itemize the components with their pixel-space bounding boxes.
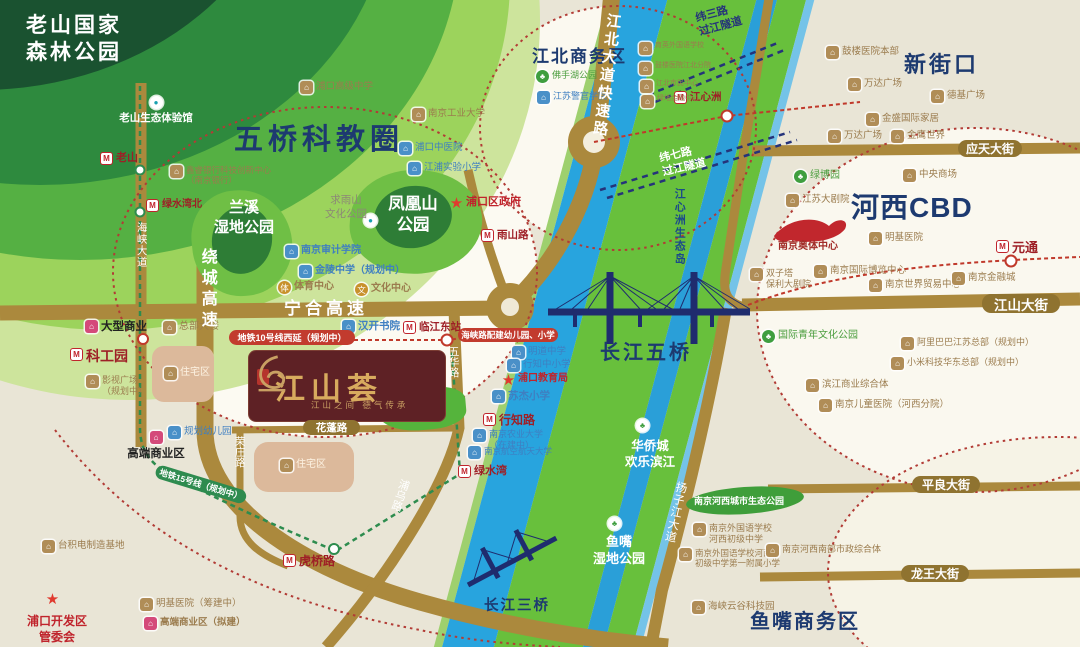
poi-nanjing-wtc-icon: ⌂ bbox=[869, 279, 882, 292]
label-changjiang-5th-bridge: 长江五桥 bbox=[600, 340, 692, 366]
poi-laoshan-eco-hall-icon: ● bbox=[150, 96, 163, 109]
poi-metro-yuantong-icon: M bbox=[996, 240, 1009, 253]
poi-wanda-plaza-north: ⌂万达广场 bbox=[848, 78, 902, 91]
poi-octbay-leaf-icon: ♣ bbox=[636, 419, 649, 432]
poi-jiangsu-grand-theatre-icon: ⌂ bbox=[786, 194, 799, 207]
poi-foshouhu-park-icon: ♣ bbox=[536, 70, 549, 83]
poi-highend-commerce-planned-icon: ⌂ bbox=[144, 617, 157, 630]
poi-yuzui-leaf-icon: ♣ bbox=[608, 517, 621, 530]
poi-metro-laoshan-icon: M bbox=[100, 152, 113, 165]
poi-central-emporium: ⌂中央商场 bbox=[903, 169, 957, 182]
poi-metro-yushanlu-icon: M bbox=[481, 229, 494, 242]
poi-benq-hospital-label: 明基医院 bbox=[885, 232, 923, 244]
poi-jinling-middle-school-icon: ⌂ bbox=[299, 265, 312, 278]
poi-jiangsu-police-institute-icon: ⌂ bbox=[537, 91, 550, 104]
project-slogan: 江山之间 德气传承 bbox=[311, 399, 408, 411]
poi-jinling-middle-school: ⌂金陵中学（规划中） bbox=[299, 265, 405, 278]
poi-foshouhu-park-label: 佛手湖公园 bbox=[552, 70, 597, 81]
poi-hexi-south-municipal-complex-label: 南京河西南部市政综合体 bbox=[782, 544, 881, 555]
poi-xingzhi-school: ⌂行知中小学 bbox=[507, 359, 571, 372]
poi-deji-plaza-icon: ⌂ bbox=[931, 90, 944, 103]
poi-metro-linjiangdong-label: 临江东站 bbox=[419, 321, 461, 334]
poi-wanda-plaza-north-icon: ⌂ bbox=[848, 78, 861, 91]
road-rongzhuang-road: 荣庄路 bbox=[232, 436, 246, 468]
poi-pukou-education-bureau: ★浦口教育局 bbox=[502, 373, 568, 386]
poi-xiaomi-east-hq: ⌂小米科技华东总部（规划中） bbox=[891, 357, 1024, 370]
poi-yuzui-leaf: ♣ bbox=[608, 517, 621, 530]
poi-tsmc-base-label: 台积电制造基地 bbox=[58, 540, 125, 552]
poi-deji-plaza: ⌂德基广场 bbox=[931, 90, 985, 103]
poi-nanjing-financial-city-label: 南京金融城 bbox=[968, 272, 1016, 284]
poi-culture-center-icon: 文 bbox=[355, 283, 368, 296]
poi-metro-lvshuiwan: M绿水湾 bbox=[458, 465, 507, 478]
poi-alibaba-jiangsu-hq-label: 阿里巴巴江苏总部（规划中） bbox=[917, 337, 1034, 348]
label-nanjing-olympic-center: 南京奥体中心 bbox=[778, 240, 838, 253]
label-laoshan-national-forest-park: 老山国家 森林公园 bbox=[26, 12, 122, 67]
label-xinjiekou: 新街口 bbox=[904, 51, 979, 80]
poi-bank-innovation-center: ⌂鑫睿银行科技创新中心 （南京银行） bbox=[170, 165, 271, 186]
poi-metro-lvshuiwanbei-label: 绿水湾北 bbox=[162, 199, 202, 211]
poi-nanjing-wtc-label: 南京世界贸易中心 bbox=[885, 279, 961, 291]
poi-nfls-hexi-junior-label: 南京外国语学校 河西初级中学 bbox=[709, 523, 772, 545]
poi-lvboyuan-label: 绿博园 bbox=[810, 170, 840, 182]
label-changjiang-3rd-bridge: 长江三桥 bbox=[484, 597, 550, 616]
poi-highend-commerce: ⌂高端商业区 bbox=[108, 431, 204, 461]
poi-mingdao-middle-school-icon: ⌂ bbox=[512, 346, 525, 359]
poi-twin-towers-poly-label: 双子塔 保利大剧院 bbox=[766, 268, 811, 290]
poi-binjiang-commercial-complex: ⌂滨江商业综合体 bbox=[806, 379, 889, 392]
poi-pukou-tcm-hospital: ⌂浦口中医院 bbox=[399, 142, 463, 155]
poi-metro-linjiangdong-icon: M bbox=[403, 321, 416, 334]
poi-pukou-education-bureau-label: 浦口教育局 bbox=[518, 373, 568, 385]
poi-metro-huqiaolu: M虎桥路 bbox=[283, 554, 335, 569]
poi-twin-towers-poly-icon: ⌂ bbox=[750, 268, 763, 281]
poi-metro-xingzhilu: M行知路 bbox=[483, 413, 535, 428]
poi-benq-hospital-planned: ⌂明基医院（筹建中） bbox=[140, 598, 242, 611]
poi-pukou-senior-high-label: 浦口高级中学 bbox=[316, 81, 373, 93]
label-yuzui-wetland-park: 鱼嘴 湿地公园 bbox=[582, 534, 656, 568]
poi-xingzhi-school-label: 行知中小学 bbox=[523, 359, 571, 371]
road-badge-yingtian-street: 应天大街 bbox=[958, 140, 1022, 157]
poi-jinying-world: ⌂金鹰世界 bbox=[891, 130, 945, 143]
poi-lvboyuan: ♣绿博园 bbox=[794, 170, 840, 183]
poi-metro-xingzhilu-label: 行知路 bbox=[499, 413, 535, 428]
poi-wanda-plaza-south: ⌂万达广场 bbox=[828, 130, 882, 143]
poi-metro-yuantong-label: 元通 bbox=[1012, 240, 1038, 256]
roundabouts bbox=[486, 116, 620, 331]
poi-residential-b-label: ⌂住宅区 bbox=[280, 459, 326, 472]
poi-nanjing-aeronautics-university-icon: ⌂ bbox=[468, 446, 481, 459]
poi-children-hospital-hexi-icon: ⌂ bbox=[819, 399, 832, 412]
poi-sujie-primary-icon: ⌂ bbox=[492, 390, 505, 403]
poi-jiangbei-civic-center-icon: ⌂ bbox=[640, 80, 653, 93]
poi-metro-linjiangdong: M临江东站 bbox=[403, 321, 461, 334]
poi-laoshan-eco-hall-label: 老山生态体验馆 bbox=[108, 112, 204, 125]
poi-pukou-senior-high: ⌂浦口高级中学 bbox=[300, 81, 373, 94]
poi-highend-commerce-planned-label: 高端商业区（拟建） bbox=[160, 617, 246, 629]
poi-greenland-financial-center-icon: ⌂ bbox=[641, 95, 654, 108]
poi-mingdao-middle-school: ⌂明道中学 bbox=[512, 346, 566, 359]
poi-residential-a-label: ⌂住宅区 bbox=[164, 367, 210, 380]
poi-nfls-first-affiliated-primary: ⌂南京外国语学校河西 初级中学第一附属小学 bbox=[679, 548, 780, 569]
label-jiangxinzhou-eco-island: 江心洲生态岛 bbox=[672, 188, 686, 266]
poi-jiangpu-experimental-primary: ⌂江浦实验小学 bbox=[408, 162, 481, 175]
road-raocheng-expressway: 绕城高速 bbox=[196, 248, 217, 332]
poi-intl-youth-culture-park-label: 国际青年文化公园 bbox=[778, 330, 858, 342]
poi-jiangbei-civic-center: ⌂江北市民中心 bbox=[640, 80, 698, 93]
poi-tsmc-base: ⌂台积电制造基地 bbox=[42, 540, 125, 553]
poi-benq-hospital-planned-label: 明基医院（筹建中） bbox=[156, 598, 242, 610]
poi-nanjing-tech-university-label: 南京工业大学 bbox=[428, 108, 485, 120]
poi-metro-laoshan-label: 老山 bbox=[116, 152, 138, 165]
road-badge-pingliang-street: 平良大街 bbox=[912, 476, 980, 493]
label-yuzui-business-district: 鱼嘴商务区 bbox=[750, 609, 860, 635]
poi-binjiang-commercial-complex-label: 滨江商业综合体 bbox=[822, 379, 889, 391]
poi-nanjing-financial-city-icon: ⌂ bbox=[952, 272, 965, 285]
poi-nfls-first-affiliated-primary-icon: ⌂ bbox=[679, 548, 692, 561]
poi-pukou-district-government-label: 浦口区政府 bbox=[466, 196, 521, 209]
poi-children-hospital-hexi-label: 南京儿童医院（河西分院） bbox=[835, 399, 949, 411]
road-haixia-avenue: 海峡大道 bbox=[134, 222, 148, 268]
road-badge-longwang-street: 龙王大街 bbox=[901, 565, 969, 582]
poi-central-emporium-label: 中央商场 bbox=[919, 169, 957, 181]
poi-benq-hospital: ⌂明基医院 bbox=[869, 232, 923, 245]
poi-nanjing-audit-university-icon: ⌂ bbox=[285, 245, 298, 258]
poi-pukou-senior-high-icon: ⌂ bbox=[300, 81, 313, 94]
poi-highend-commerce-planned: ⌂高端商业区（拟建） bbox=[144, 617, 246, 630]
road-badge-jiangshan-street: 江山大街 bbox=[982, 294, 1060, 313]
poi-nanjing-financial-city: ⌂南京金融城 bbox=[952, 272, 1016, 285]
poi-yuying-foreign-school: ⌂育英外国语学校 bbox=[639, 42, 704, 55]
poi-nfls-hexi-junior: ⌂南京外国语学校 河西初级中学 bbox=[693, 523, 772, 545]
poi-alibaba-jiangsu-hq: ⌂阿里巴巴江苏总部（规划中） bbox=[901, 337, 1034, 350]
poi-bank-innovation-center-icon: ⌂ bbox=[170, 165, 183, 178]
poi-jiangpu-experimental-primary-icon: ⌂ bbox=[408, 162, 421, 175]
poi-residential-a-label-icon: ⌂ bbox=[164, 367, 177, 380]
poi-highend-commerce-label: 高端商业区 bbox=[108, 447, 204, 461]
poi-hankai-academy-label: 汉开书院 bbox=[358, 320, 400, 333]
poi-benq-hospital-icon: ⌂ bbox=[869, 232, 882, 245]
poi-nanjing-audit-university-label: 南京审计学院 bbox=[301, 245, 361, 257]
poi-yuying-foreign-school-icon: ⌂ bbox=[639, 42, 652, 55]
poi-gulou-hospital-jiangbei: ⌂鼓楼医院江北分院 bbox=[639, 62, 711, 75]
label-lanxi-wetland-park: 兰溪 湿地公园 bbox=[200, 198, 288, 237]
poi-metro-kegongyuan: M科工园 bbox=[70, 348, 128, 365]
poi-haixia-cloud-valley-icon: ⌂ bbox=[692, 601, 705, 614]
poi-yingshi-plaza-label: 影视广场 （规划中） bbox=[102, 375, 147, 397]
poi-gulou-hospital-main: ⌂鼓楼医院本部 bbox=[826, 46, 899, 59]
poi-metro-kegongyuan-icon: M bbox=[70, 348, 83, 361]
poi-sports-center-label: 体育中心 bbox=[294, 281, 334, 293]
poi-nanjing-expo-center-icon: ⌂ bbox=[814, 265, 827, 278]
poi-metro-huqiaolu-label: 虎桥路 bbox=[299, 554, 335, 569]
poi-nanjing-audit-university: ⌂南京审计学院 bbox=[285, 245, 361, 258]
label-hexi-cbd: 河西CBD bbox=[851, 190, 973, 226]
poi-yuying-foreign-school-label: 育英外国语学校 bbox=[655, 42, 704, 51]
poi-nanjing-aeronautics-university-label: 南京航空航天大学 bbox=[484, 446, 552, 456]
poi-jinling-middle-school-label: 金陵中学（规划中） bbox=[315, 265, 405, 277]
poi-yingshi-plaza-icon: ⌂ bbox=[86, 375, 99, 388]
poi-gulou-hospital-jiangbei-label: 鼓楼医院江北分院 bbox=[655, 62, 711, 71]
poi-metro-yuantong: M元通 bbox=[996, 240, 1038, 256]
poi-residential-b-label-label: 住宅区 bbox=[296, 459, 326, 471]
poi-metro-lvshuiwanbei-icon: M bbox=[146, 199, 159, 212]
poi-sujie-primary-label: 苏杰小学 bbox=[508, 390, 550, 403]
poi-hexi-south-municipal-complex-icon: ⌂ bbox=[766, 544, 779, 557]
poi-gulou-hospital-main-label: 鼓楼医院本部 bbox=[842, 46, 899, 58]
poi-large-commerce-icon: ⌂ bbox=[85, 320, 98, 333]
poi-nanjing-aeronautics-university: ⌂南京航空航天大学 bbox=[468, 446, 552, 459]
bridge-changjiang-3 bbox=[456, 515, 560, 592]
poi-lvboyuan-icon: ♣ bbox=[794, 170, 807, 183]
poi-large-commerce: ⌂大型商业 bbox=[85, 320, 147, 334]
poi-laoshan-eco-hall: ●老山生态体验馆 bbox=[108, 96, 204, 125]
poi-jinsheng-home: ⌂金盛国际家居 bbox=[866, 113, 939, 126]
poi-pukou-district-government: ★浦口区政府 bbox=[450, 196, 521, 209]
poi-pukou-education-bureau-icon: ★ bbox=[502, 373, 515, 386]
poi-nanjing-tech-university: ⌂南京工业大学 bbox=[412, 108, 485, 121]
poi-metro-lvshuiwan-icon: M bbox=[458, 465, 471, 478]
label-hexi-urban-eco-park: 南京河西城市生态公园 bbox=[694, 496, 784, 508]
poi-nanjing-expo-center: ⌂南京国际博览中心 bbox=[814, 265, 906, 278]
poi-xiaomi-east-hq-icon: ⌂ bbox=[891, 357, 904, 370]
poi-residential-b-label-icon: ⌂ bbox=[280, 459, 293, 472]
poi-octbay-leaf: ♣ bbox=[636, 419, 649, 432]
poi-headquarters-building-icon: ⌂ bbox=[163, 321, 176, 334]
poi-yingshi-plaza: ⌂影视广场 （规划中） bbox=[86, 375, 147, 397]
poi-jiangsu-grand-theatre-label: 江苏大剧院 bbox=[802, 194, 850, 206]
label-qiuyushan-culture-park: 求雨山 文化公园 bbox=[314, 194, 378, 221]
poi-hexi-south-municipal-complex: ⌂南京河西南部市政综合体 bbox=[766, 544, 881, 557]
road-badge-huapeng-road: 花蓬路 bbox=[303, 420, 360, 435]
project-logo-icon bbox=[249, 351, 293, 395]
poi-jiangbei-civic-center-label: 江北市民中心 bbox=[656, 80, 698, 89]
poi-alibaba-jiangsu-hq-icon: ⌂ bbox=[901, 337, 914, 350]
poi-pukou-devzone-star: ★ bbox=[46, 592, 59, 605]
poi-metro-kegongyuan-label: 科工园 bbox=[86, 348, 128, 365]
label-octbay-binjiang: 华侨城 欢乐滨江 bbox=[618, 438, 682, 471]
project-jiangshanhui-block: 江山荟 江山之间 德气传承 bbox=[248, 350, 446, 422]
banner-metro-line10-extension: 地铁10号线西延（规划中） bbox=[229, 330, 355, 345]
poi-greenland-financial-center: ⌂绿地金融中心 bbox=[641, 95, 699, 108]
road-ninghe-expressway: 宁合高速 bbox=[284, 298, 368, 320]
poi-binjiang-commercial-complex-icon: ⌂ bbox=[806, 379, 819, 392]
poi-children-hospital-hexi: ⌂南京儿童医院（河西分院） bbox=[819, 399, 949, 412]
poi-nanjing-expo-center-label: 南京国际博览中心 bbox=[830, 265, 906, 277]
road-wuhua-road: 五华路 bbox=[446, 346, 460, 378]
poi-tsmc-base-icon: ⌂ bbox=[42, 540, 55, 553]
poi-jinsheng-home-icon: ⌂ bbox=[866, 113, 879, 126]
poi-residential-a-label-label: 住宅区 bbox=[180, 367, 210, 379]
poi-xiaomi-east-hq-label: 小米科技华东总部（规划中） bbox=[907, 357, 1024, 368]
poi-gulou-hospital-main-icon: ⌂ bbox=[826, 46, 839, 59]
poi-mingdao-middle-school-label: 明道中学 bbox=[528, 346, 566, 358]
poi-jiangpu-experimental-primary-label: 江浦实验小学 bbox=[424, 162, 481, 174]
poi-nanjing-agricultural-university-icon: ⌂ bbox=[473, 429, 486, 442]
poi-sports-center-icon: 体 bbox=[278, 281, 291, 294]
poi-benq-hospital-planned-icon: ⌂ bbox=[140, 598, 153, 611]
poi-pukou-tcm-hospital-label: 浦口中医院 bbox=[415, 142, 463, 154]
poi-foshouhu-park: ♣佛手湖公园 bbox=[536, 70, 597, 83]
poi-bank-innovation-center-label: 鑫睿银行科技创新中心 （南京银行） bbox=[186, 165, 271, 186]
poi-metro-huqiaolu-icon: M bbox=[283, 554, 296, 567]
poi-culture-center-label: 文化中心 bbox=[371, 283, 411, 295]
poi-gulou-hospital-jiangbei-icon: ⌂ bbox=[639, 62, 652, 75]
poi-sports-center: 体体育中心 bbox=[278, 281, 334, 294]
poi-metro-lvshuiwanbei: M绿水湾北 bbox=[146, 199, 202, 212]
poi-jinying-world-label: 金鹰世界 bbox=[907, 130, 945, 142]
poi-metro-yushanlu-label: 雨山路 bbox=[497, 229, 529, 242]
poi-metro-lvshuiwan-label: 绿水湾 bbox=[474, 465, 507, 478]
poi-nfls-hexi-junior-icon: ⌂ bbox=[693, 523, 706, 536]
poi-twin-towers-poly: ⌂双子塔 保利大剧院 bbox=[750, 268, 811, 290]
banner-haixia-road-schools: 海峡路配建幼儿园、小学 bbox=[458, 328, 558, 342]
poi-metro-yushanlu: M雨山路 bbox=[481, 229, 529, 242]
poi-sujie-primary: ⌂苏杰小学 bbox=[492, 390, 550, 403]
label-pukou-devzone-committee: 浦口开发区 管委会 bbox=[22, 614, 92, 645]
poi-central-emporium-icon: ⌂ bbox=[903, 169, 916, 182]
poi-jinsheng-home-label: 金盛国际家居 bbox=[882, 113, 939, 125]
poi-nanjing-tech-university-icon: ⌂ bbox=[412, 108, 425, 121]
poi-highend-commerce-icon: ⌂ bbox=[150, 431, 163, 444]
poi-wanda-plaza-south-icon: ⌂ bbox=[828, 130, 841, 143]
poi-deji-plaza-label: 德基广场 bbox=[947, 90, 985, 102]
poi-jiangsu-grand-theatre: ⌂江苏大剧院 bbox=[786, 194, 850, 207]
poi-greenland-financial-center-label: 绿地金融中心 bbox=[657, 95, 699, 104]
poi-metro-xingzhilu-icon: M bbox=[483, 413, 496, 426]
poi-intl-youth-culture-park: ♣国际青年文化公园 bbox=[762, 330, 858, 343]
poi-nanjing-wtc: ⌂南京世界贸易中心 bbox=[869, 279, 961, 292]
label-fenghuangshan-park: 凤凰山 公园 bbox=[372, 194, 454, 237]
poi-large-commerce-label: 大型商业 bbox=[101, 320, 147, 334]
poi-intl-youth-culture-park-icon: ♣ bbox=[762, 330, 775, 343]
poi-culture-center: 文文化中心 bbox=[355, 283, 411, 296]
map-stage: 江山荟 江山之间 德气传承 ●老山生态体验馆M老山M绿水湾北⌂鑫睿银行科技创新中… bbox=[0, 0, 1080, 647]
poi-metro-laoshan: M老山 bbox=[100, 152, 138, 165]
olympic-center-icon bbox=[774, 220, 846, 242]
poi-jinying-world-icon: ⌂ bbox=[891, 130, 904, 143]
poi-wanda-plaza-south-label: 万达广场 bbox=[844, 130, 882, 142]
poi-pukou-devzone-star-icon: ★ bbox=[46, 592, 59, 605]
label-wuqiao-science-circle: 五桥科教圈 bbox=[234, 122, 404, 160]
poi-wanda-plaza-north-label: 万达广场 bbox=[864, 78, 902, 90]
